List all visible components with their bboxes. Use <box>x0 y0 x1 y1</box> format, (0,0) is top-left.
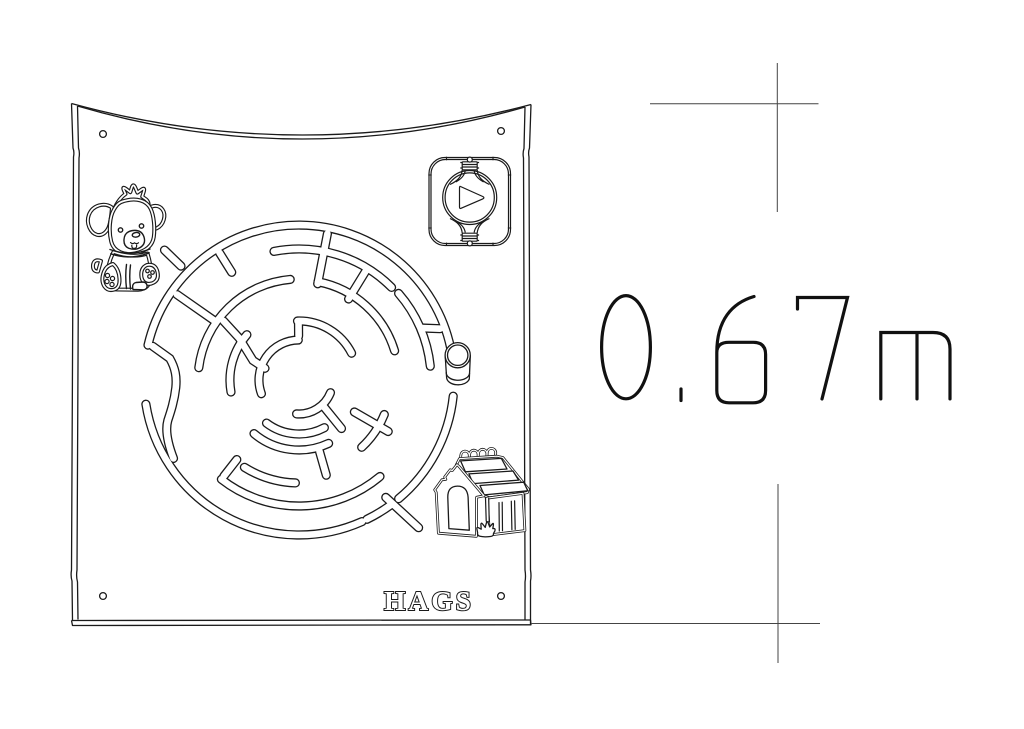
svg-text:HAGS: HAGS <box>384 585 474 616</box>
